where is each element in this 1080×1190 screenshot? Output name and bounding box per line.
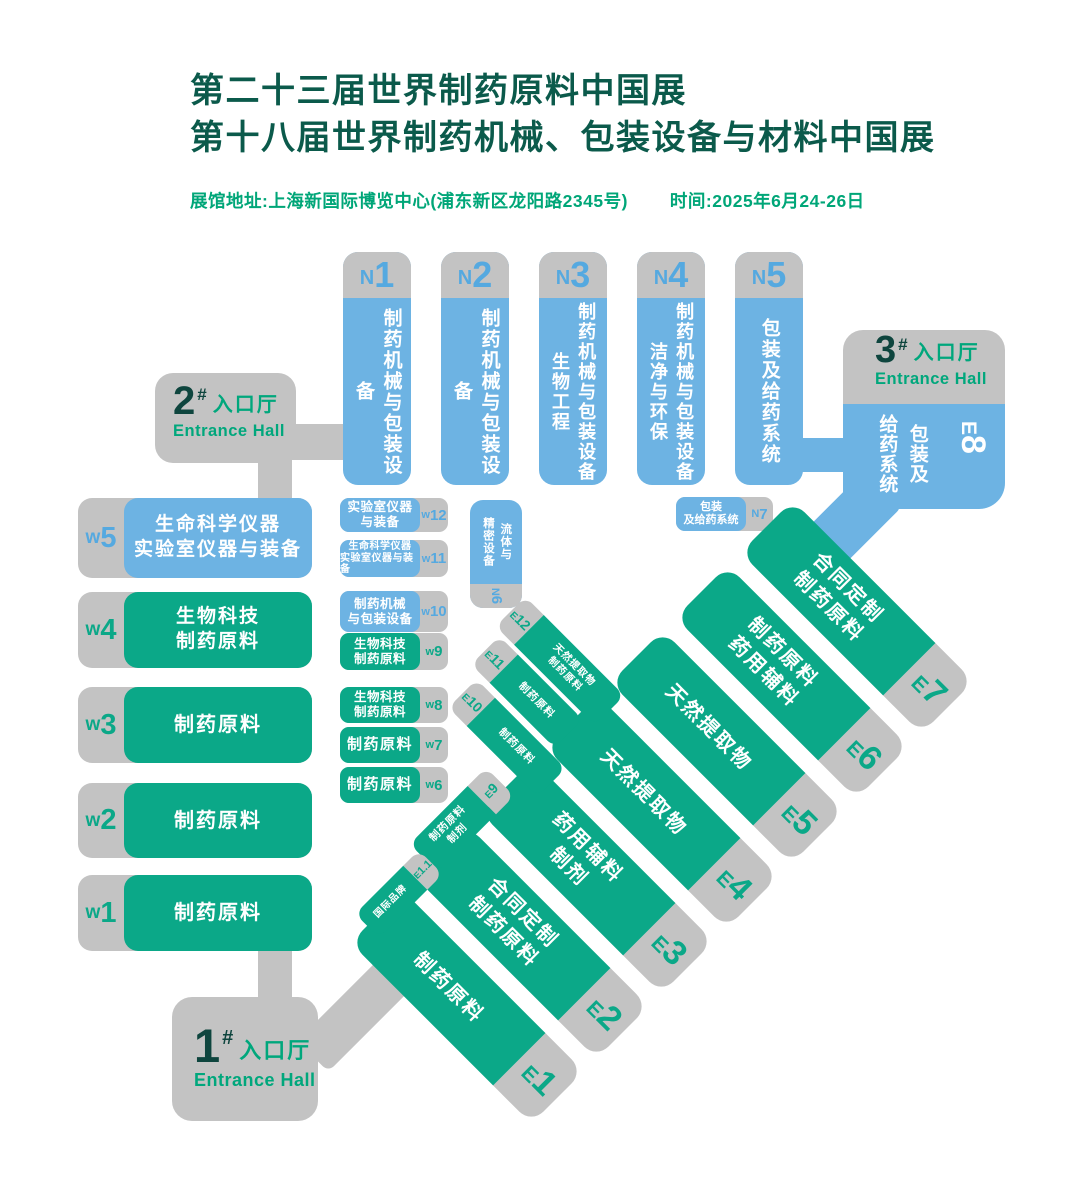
hall-w10-name: 制药机械与包装设备 [340,591,420,632]
hall-n6-label: N6 [470,584,522,608]
entrance-hall-1: 1#入口厅 Entrance Hall [172,997,318,1121]
hall-w8-label: w8 [420,687,448,723]
hall-n5-name: 包装及给药系统 [735,298,803,485]
hall-w2: w2 制药原料 [78,783,312,858]
hall-w6-label: w6 [420,767,448,803]
hall-w12-label: w12 [420,498,448,532]
hall-w6: 制药原料 w6 [340,767,448,803]
hall-w12-name: 实验室仪器与装备 [340,498,420,532]
hall-w1-name: 制药原料 [124,875,312,951]
hall-w1-label: w1 [78,875,124,951]
hall-n2: N2 制药机械与包装设备 [441,252,509,485]
hall-w10-label: w10 [420,591,448,632]
expo-floor-plan: 第二十三届世界制药原料中国展 第十八届世界制药机械、包装设备与材料中国展 展馆地… [0,0,1080,1190]
hall-e8-label: E8 [953,421,992,454]
hall-n7-name: 包装及给药系统 [676,497,746,531]
hall-w6-name: 制药原料 [340,767,420,803]
title-line-1: 第二十三届世界制药原料中国展 [190,68,936,115]
event-time: 时间:2025年6月24-26日 [670,188,865,213]
hall-w7-label: w7 [420,727,448,763]
hall-w10: 制药机械与包装设备 w10 [340,591,448,632]
hall-w4-label: w4 [78,592,124,668]
hall-w12: 实验室仪器与装备 w12 [340,498,448,532]
hall-w4-name: 生物科技制药原料 [124,592,312,668]
hall-n1: N1 制药机械与包装设备 [343,252,411,485]
hall-w3-label: w3 [78,687,124,763]
hall-n7: 包装及给药系统 N7 [676,497,773,531]
hall-n3: N3 制药机械与包装设备生物工程 [539,252,607,485]
hall-e8-name: 包装及给药系统 [871,414,932,494]
hall-n2-name: 制药机械与包装设备 [441,298,509,485]
connector-w1-entrance1 [258,950,292,1000]
venue-and-time: 展馆地址:上海新国际博览中心(浦东新区龙阳路2345号) 时间:2025年6月2… [190,188,865,213]
hall-w2-name: 制药原料 [124,783,312,858]
hall-w5-name: 生命科学仪器实验室仪器与装备 [124,498,312,578]
hall-n1-label: N1 [343,252,411,298]
entrance-hall-2-text: 2#入口厅 Entrance Hall [155,373,296,441]
hall-e8: 包装及给药系统 E8 [843,404,1005,509]
page-title: 第二十三届世界制药原料中国展 第十八届世界制药机械、包装设备与材料中国展 [190,68,936,162]
hall-w3: w3 制药原料 [78,687,312,763]
venue-address: 展馆地址:上海新国际博览中心(浦东新区龙阳路2345号) [190,188,628,213]
hall-w8-name: 生物科技制药原料 [340,687,420,723]
hall-w9: 生物科技制药原料 w9 [340,633,448,670]
entrance-hall-2: 2#入口厅 Entrance Hall [155,373,296,463]
hall-n4-label: N4 [637,252,705,298]
hall-w11-name: 生命科学仪器实验室仪器与装备 [340,540,420,577]
hall-w5: w5 生命科学仪器实验室仪器与装备 [78,498,312,578]
hall-n4-name: 制药机械与包装设备洁净与环保 [637,298,705,485]
connector-n5-e8 [798,438,848,472]
connector-entrance2-n1 [292,424,346,460]
hall-w9-label: w9 [420,633,448,670]
hall-n1-name: 制药机械与包装设备 [343,298,411,485]
hall-w4: w4 生物科技制药原料 [78,592,312,668]
hall-n6-name: 流体与精密设备 [470,500,522,584]
hall-n6: 流体与精密设备 N6 [470,500,522,608]
hall-w11: 生命科学仪器实验室仪器与装备 w11 [340,540,448,577]
hall-w2-label: w2 [78,783,124,858]
hall-w7-name: 制药原料 [340,727,420,763]
hall-w11-label: w11 [420,540,448,577]
hall-n3-name: 制药机械与包装设备生物工程 [539,298,607,485]
hall-w3-name: 制药原料 [124,687,312,763]
hall-w1: w1 制药原料 [78,875,312,951]
hall-w7: 制药原料 w7 [340,727,448,763]
hall-n4: N4 制药机械与包装设备洁净与环保 [637,252,705,485]
hall-w5-label: w5 [78,498,124,578]
hall-n2-label: N2 [441,252,509,298]
hall-n3-label: N3 [539,252,607,298]
hall-n5-label: N5 [735,252,803,298]
entrance-hall-3-text: 3#入口厅 Entrance Hall [843,330,1005,389]
entrance-hall-3: 3#入口厅 Entrance Hall [843,330,1005,404]
hall-w9-name: 生物科技制药原料 [340,633,420,670]
hall-n5: N5 包装及给药系统 [735,252,803,485]
entrance-hall-1-text: 1#入口厅 Entrance Hall [172,997,318,1091]
title-line-2: 第十八届世界制药机械、包装设备与材料中国展 [190,115,936,162]
hall-w8: 生物科技制药原料 w8 [340,687,448,723]
